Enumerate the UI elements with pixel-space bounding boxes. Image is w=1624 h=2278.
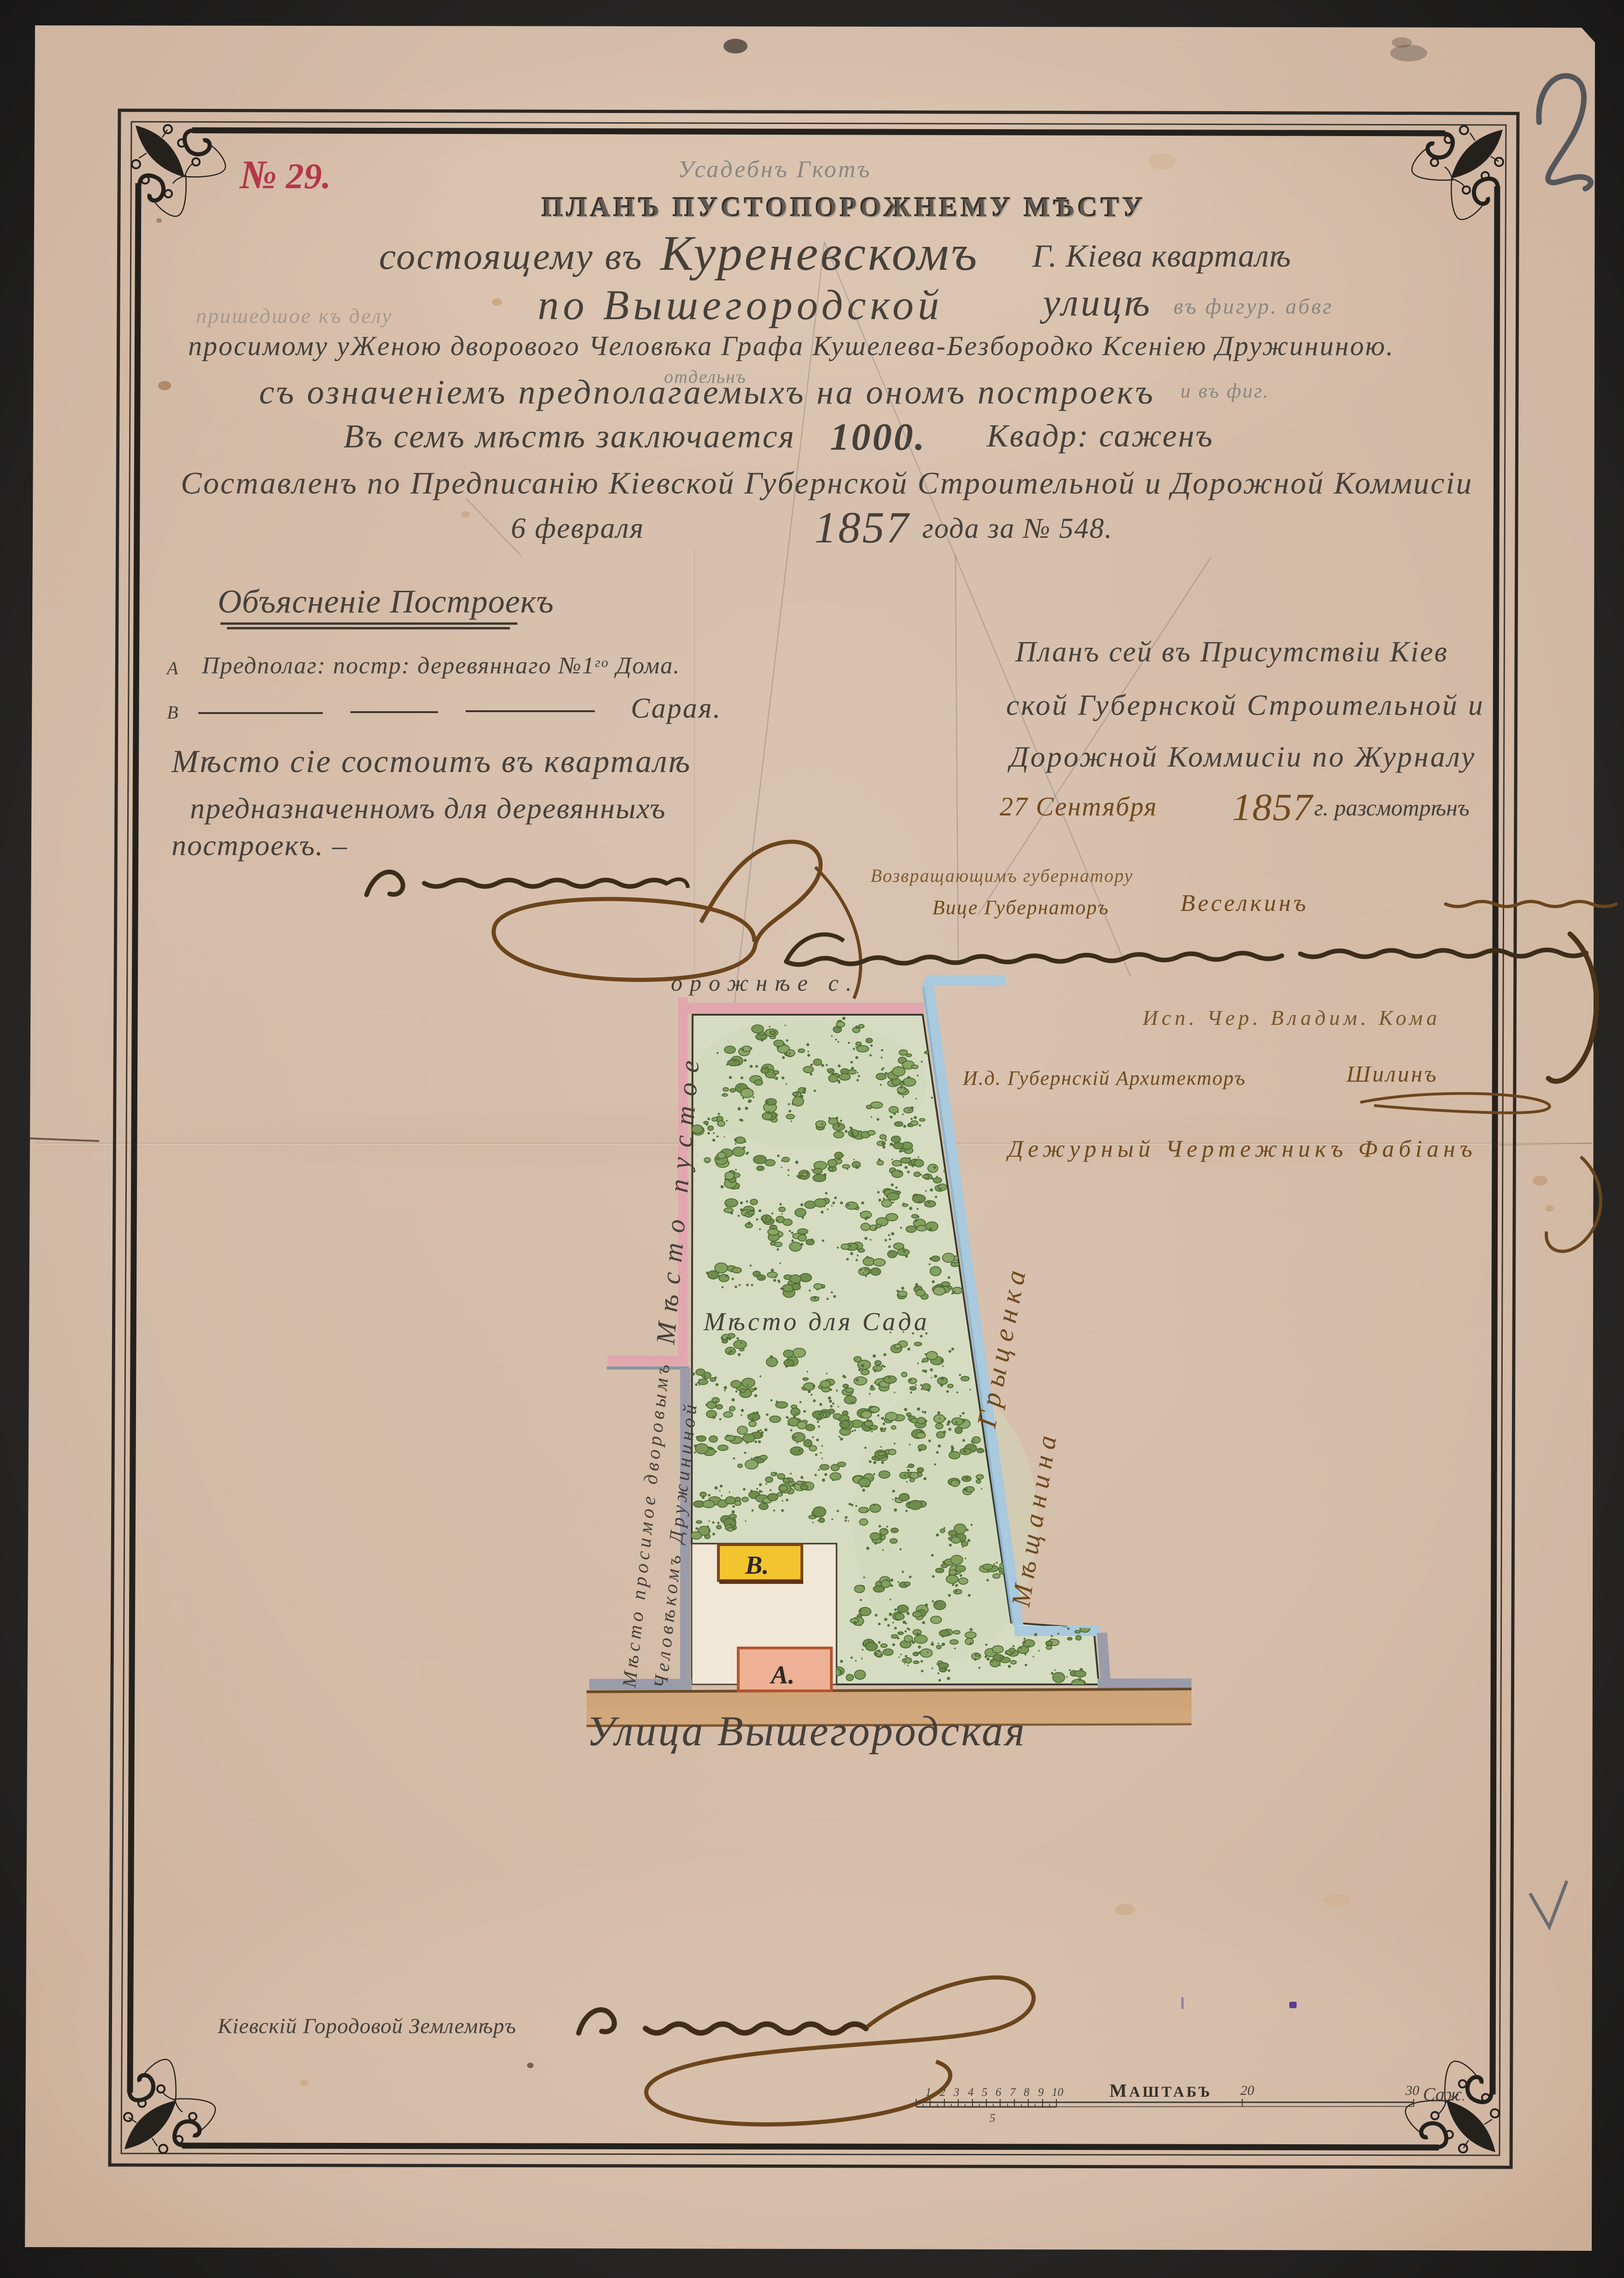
svg-text:ПЛАНЪ ПУСТОПОРОЖНЕМУ МѢСТУ: ПЛАНЪ ПУСТОПОРОЖНЕМУ МѢСТУ xyxy=(543,193,1147,223)
svg-text:3: 3 xyxy=(953,2086,960,2099)
svg-text:состоящему въ: состоящему въ xyxy=(379,235,643,277)
svg-text:ской Губернской Строительной и: ской Губернской Строительной и xyxy=(1006,689,1485,721)
svg-text:Планъ сей въ Присутствіи Кіев: Планъ сей въ Присутствіи Кіев xyxy=(1015,636,1448,668)
svg-text:Саж.: Саж. xyxy=(1423,2084,1465,2105)
svg-text:А.: А. xyxy=(770,1661,794,1689)
svg-text:10: 10 xyxy=(1052,2086,1064,2099)
svg-text:Возвращающимъ губернатору: Возвращающимъ губернатору xyxy=(871,865,1133,886)
svg-text:Въ семъ мѣстѣ заключается: Въ семъ мѣстѣ заключается xyxy=(344,418,795,455)
svg-text:Мѣсто сіе состоитъ въ кварталѣ: Мѣсто сіе состоитъ въ кварталѣ xyxy=(171,744,691,779)
svg-text:Улица Вышегородская: Улица Вышегородская xyxy=(587,1707,1026,1755)
svg-text:А: А xyxy=(166,658,178,678)
svg-text:5: 5 xyxy=(982,2086,988,2099)
svg-text:пришедшое къ делу: пришедшое къ делу xyxy=(196,304,393,327)
svg-text:27 Сентября: 27 Сентября xyxy=(1000,791,1157,821)
svg-text:г. разсмотрѣнъ: г. разсмотрѣнъ xyxy=(1314,795,1470,821)
svg-text:улицѣ: улицѣ xyxy=(1039,281,1152,324)
svg-text:года за № 548.: года за № 548. xyxy=(922,513,1113,544)
svg-text:Г. Кіева кварталѣ: Г. Кіева кварталѣ xyxy=(1032,238,1291,274)
svg-text:въ фигур. абвг: въ фигур. абвг xyxy=(1174,294,1333,319)
svg-text:Составленъ по Предписанію Кіев: Составленъ по Предписанію Кіевской Губер… xyxy=(181,465,1473,500)
svg-text:Шилинъ: Шилинъ xyxy=(1346,1061,1438,1087)
svg-text:6: 6 xyxy=(996,2086,1002,2099)
svg-text:Дежурный Чертежникъ Фабіанъ: Дежурный Чертежникъ Фабіанъ xyxy=(1006,1136,1477,1162)
svg-text:№ 29.: № 29. xyxy=(239,153,331,197)
svg-text:Усадебнъ Гкотъ: Усадебнъ Гкотъ xyxy=(678,156,871,183)
svg-text:5: 5 xyxy=(990,2112,996,2124)
svg-text:6 февраля: 6 февраля xyxy=(511,512,644,544)
svg-text:просимому уЖеною дворового Чел: просимому уЖеною дворового Человѣка Граф… xyxy=(188,331,1394,361)
svg-text:построекъ. –: построекъ. – xyxy=(172,829,348,862)
svg-text:7: 7 xyxy=(1010,2086,1016,2099)
svg-text:2: 2 xyxy=(940,2086,946,2099)
svg-text:Веселкинъ: Веселкинъ xyxy=(1180,890,1309,916)
svg-text:Сарая.: Сарая. xyxy=(631,693,722,724)
svg-text:9: 9 xyxy=(1038,2086,1044,2099)
svg-text:1: 1 xyxy=(925,2086,931,2099)
svg-text:и въ фиг.: и въ фиг. xyxy=(1180,380,1269,402)
svg-text:В.: В. xyxy=(745,1551,769,1580)
svg-text:Объясненіе Построекъ: Объясненіе Построекъ xyxy=(218,583,554,620)
svg-text:И.д. Губернскій Архитекторъ: И.д. Губернскій Архитекторъ xyxy=(962,1067,1246,1089)
svg-text:Исп. Чер. Владим. Кома: Исп. Чер. Владим. Кома xyxy=(1142,1006,1441,1029)
svg-text:Квадр: саженъ: Квадр: саженъ xyxy=(986,418,1214,454)
svg-text:Куреневскомъ: Куреневскомъ xyxy=(659,226,979,281)
svg-text:по Вышегородской: по Вышегородской xyxy=(538,281,943,328)
svg-text:20: 20 xyxy=(1240,2083,1254,2098)
svg-text:30: 30 xyxy=(1405,2083,1419,2098)
svg-text:1857: 1857 xyxy=(814,503,910,552)
svg-text:предназначенномъ для деревянны: предназначенномъ для деревянныхъ xyxy=(190,792,666,825)
svg-text:8: 8 xyxy=(1024,2086,1030,2099)
svg-text:Дорожной Коммисіи по Журналу: Дорожной Коммисіи по Журналу xyxy=(1008,740,1476,773)
svg-text:В: В xyxy=(167,702,178,723)
svg-text:съ означеніемъ предполагаемыхъ: съ означеніемъ предполагаемыхъ на ономъ … xyxy=(259,374,1155,411)
svg-text:Мѣсто для Сада: Мѣсто для Сада xyxy=(703,1308,930,1336)
svg-text:Вице Губернаторъ: Вице Губернаторъ xyxy=(932,896,1109,919)
svg-text:Кіевскій Городовой Землемѣръ: Кіевскій Городовой Землемѣръ xyxy=(217,2014,516,2038)
svg-text:4: 4 xyxy=(968,2086,974,2099)
svg-text:1857: 1857 xyxy=(1232,786,1314,829)
